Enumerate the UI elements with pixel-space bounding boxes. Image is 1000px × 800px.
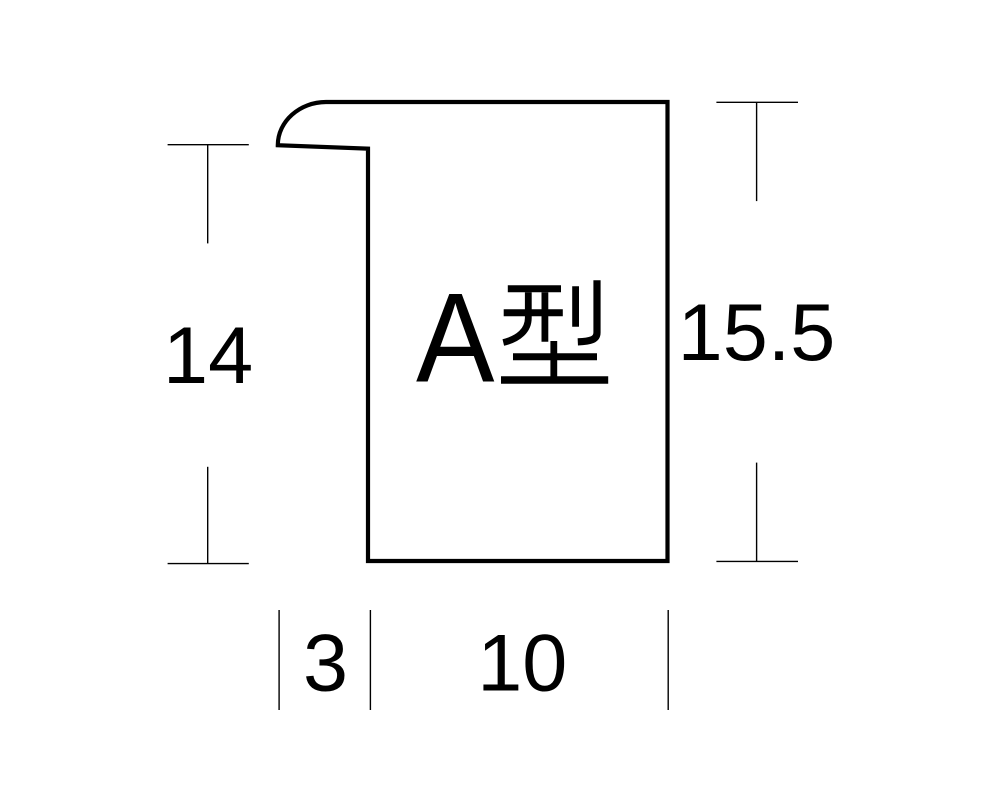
- svg-text:15.5: 15.5: [678, 288, 836, 378]
- svg-text:3: 3: [303, 619, 348, 709]
- svg-text:14: 14: [163, 311, 253, 401]
- svg-text:A: A: [416, 266, 495, 408]
- svg-text:10: 10: [477, 619, 567, 709]
